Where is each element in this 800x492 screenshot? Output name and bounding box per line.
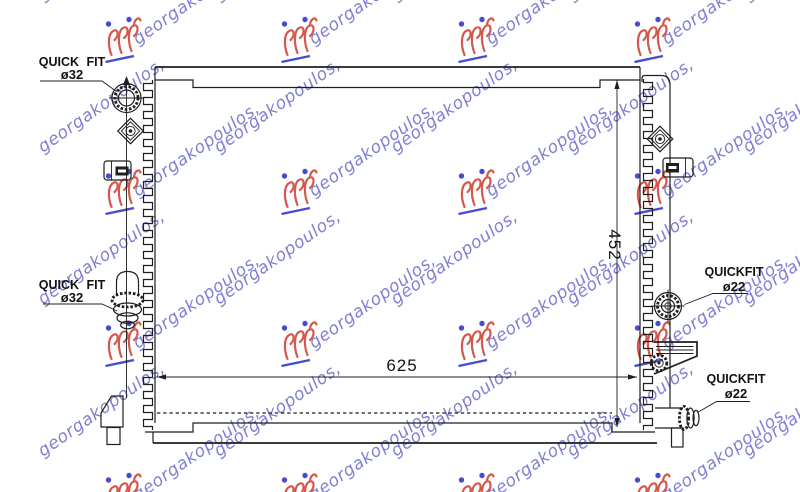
bolt-center bbox=[658, 137, 662, 141]
left-serrated-band bbox=[144, 80, 153, 430]
label-diameter: ø22 bbox=[723, 279, 745, 294]
bracket-leg bbox=[107, 428, 120, 445]
label-text: QUICKFIT bbox=[706, 372, 765, 386]
top-right-outlet-fitting bbox=[652, 290, 685, 323]
label-text: QUICKFIT bbox=[704, 265, 763, 279]
bracket-foot bbox=[101, 396, 123, 427]
pipe-leg bbox=[672, 428, 684, 447]
left-tank-assembly bbox=[101, 76, 144, 445]
bottom-right-pipe-fitting bbox=[655, 406, 699, 447]
leader-line bbox=[40, 81, 117, 92]
height-dim-arrow-top bbox=[614, 80, 619, 89]
label-diameter: ø32 bbox=[61, 290, 83, 305]
label-quick-fit-top-left: QUICK FIT ø32 bbox=[39, 55, 117, 92]
label-quickfit-top-right: QUICKFIT ø22 bbox=[685, 265, 764, 305]
hose-ring-2 bbox=[114, 303, 142, 316]
bottom-left-bracket bbox=[101, 396, 123, 445]
width-dimension: 625 bbox=[157, 356, 637, 380]
hose-dome bbox=[117, 272, 139, 297]
label-diameter: ø32 bbox=[61, 67, 83, 82]
height-dimension: 452 bbox=[605, 80, 624, 427]
leader-line bbox=[43, 304, 117, 311]
width-dim-arrow-right bbox=[628, 374, 637, 379]
right-mounting-bracket bbox=[651, 342, 697, 374]
bottom-left-hose-fitting bbox=[112, 272, 143, 329]
label-quick-fit-bottom-left: QUICK FIT ø32 bbox=[39, 278, 117, 311]
height-dim-arrow-bottom bbox=[614, 418, 619, 427]
leader-line bbox=[698, 402, 751, 413]
clip-slot bbox=[118, 170, 126, 173]
radiator-technical-diagram: 625 452 QUICK FIT ø32 QUICK FIT ø32 bbox=[0, 0, 800, 492]
right-bolt bbox=[647, 126, 672, 151]
height-dimension-value: 452 bbox=[605, 229, 624, 260]
hose-tip bbox=[121, 321, 135, 329]
diagram-canvas: georgakopoulos, georgakopoulos, georgako… bbox=[0, 0, 800, 492]
core-header-plate bbox=[155, 80, 640, 88]
radiator-core-outline bbox=[144, 67, 658, 443]
bracket-bolt-center bbox=[658, 362, 661, 365]
label-diameter: ø22 bbox=[725, 386, 747, 401]
bottom-tank-step bbox=[145, 423, 655, 432]
left-bolt bbox=[118, 118, 143, 143]
right-serrated-band bbox=[644, 79, 653, 430]
bolt-center bbox=[129, 129, 133, 133]
bracket-slot-hatch bbox=[656, 347, 694, 354]
width-dimension-value: 625 bbox=[386, 356, 417, 375]
leader-line bbox=[685, 294, 749, 305]
outlet-crosshair bbox=[652, 290, 685, 323]
clip-slot bbox=[669, 166, 677, 169]
top-left-inlet-fitting bbox=[109, 84, 144, 113]
dimension-annotations: 625 452 bbox=[157, 80, 637, 427]
label-quickfit-bottom-right: QUICKFIT ø22 bbox=[698, 372, 766, 413]
width-dim-arrow-left bbox=[157, 374, 166, 379]
right-mount-clip bbox=[663, 158, 693, 177]
